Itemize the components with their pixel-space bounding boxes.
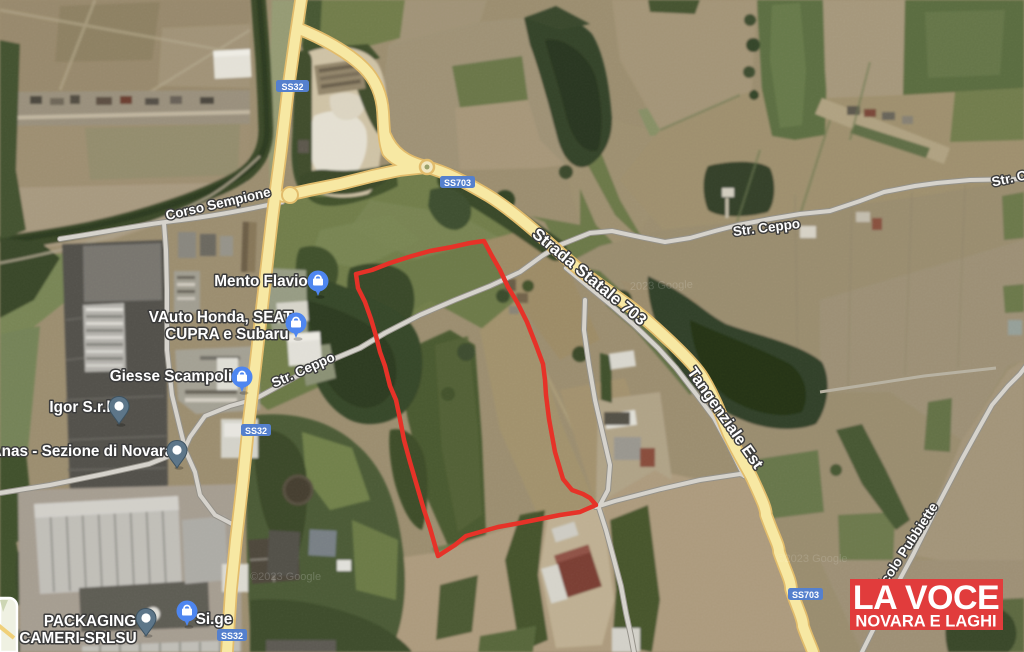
svg-text:VAuto Honda, SEAT,: VAuto Honda, SEAT,: [149, 309, 295, 326]
svg-text:SS32: SS32: [245, 426, 267, 436]
svg-text:SS703: SS703: [792, 590, 819, 600]
svg-text:Si.ge: Si.ge: [196, 611, 233, 628]
svg-text:PACKAGING: PACKAGING: [44, 613, 136, 630]
svg-text:SS703: SS703: [444, 178, 471, 188]
svg-text:SS32: SS32: [281, 82, 303, 92]
svg-text:Mento Flavio: Mento Flavio: [214, 273, 307, 290]
svg-text:CAMERI-SRLSU: CAMERI-SRLSU: [19, 630, 136, 647]
svg-text:CUPRA e Subaru: CUPRA e Subaru: [165, 326, 289, 343]
svg-text:SS32: SS32: [221, 631, 243, 641]
svg-text:Igor S.r.l: Igor S.r.l: [49, 399, 110, 416]
svg-text:Giesse Scampoli: Giesse Scampoli: [110, 368, 232, 385]
svg-text:2023 Google: 2023 Google: [630, 279, 693, 293]
svg-text:©2023 Google: ©2023 Google: [776, 553, 847, 565]
svg-text:©2023 Google: ©2023 Google: [250, 571, 321, 583]
svg-text:Anas - Sezione di Novara: Anas - Sezione di Novara: [0, 443, 174, 460]
svg-text:NOVARA E LAGHI: NOVARA E LAGHI: [855, 613, 996, 631]
svg-text:LA VOCE: LA VOCE: [853, 579, 999, 617]
